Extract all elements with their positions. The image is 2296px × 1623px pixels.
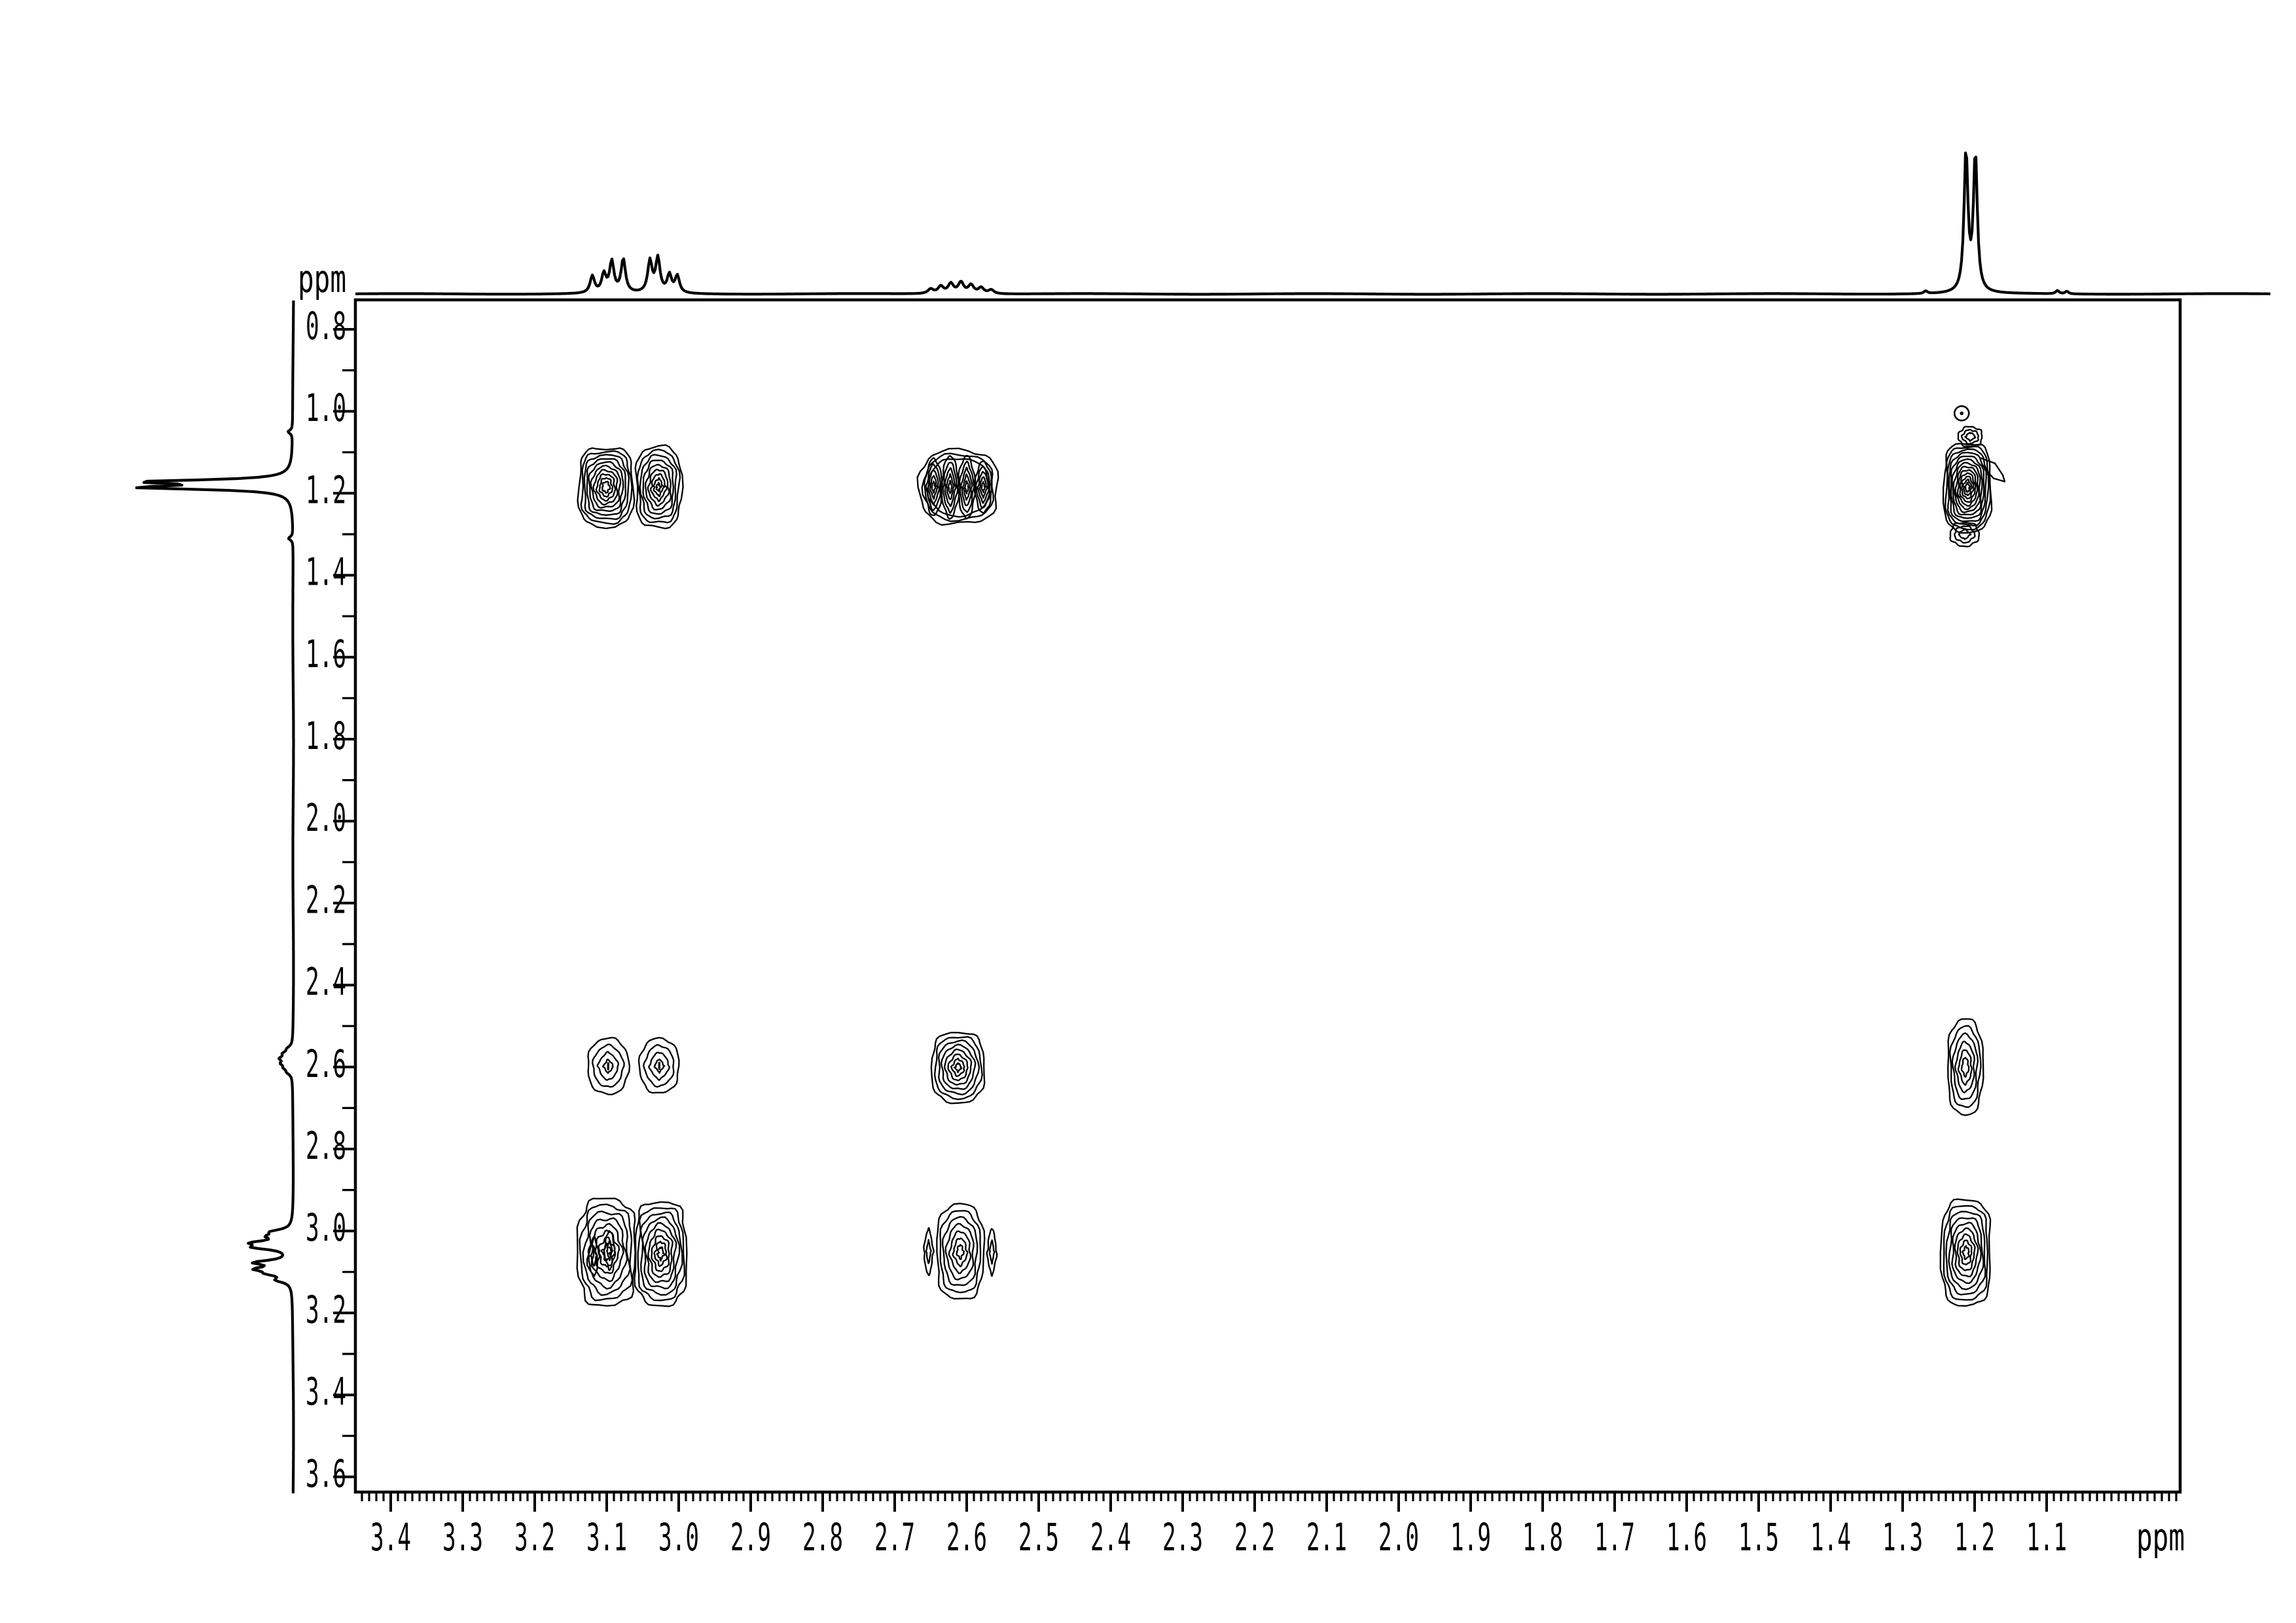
cross-peak-lobe-contour: [930, 476, 938, 500]
y-axis-tick-label: 1.8: [306, 714, 346, 758]
y-axis-tick-label: 3.6: [306, 1451, 346, 1496]
cross-peak-contour: [956, 1245, 964, 1259]
cross-peak-contour: [580, 1205, 632, 1301]
x-axis-tick-label: 1.1: [2026, 1515, 2067, 1559]
x-axis-tick-label: 3.2: [514, 1515, 555, 1559]
cross-peak-contour: [1958, 1050, 1972, 1085]
y-axis-tick-label: 1.4: [306, 550, 346, 594]
y-axis-tick-label: 1.0: [306, 386, 346, 430]
x-axis-tick-label: 3.1: [586, 1515, 627, 1559]
x-axis-tick-label: 2.9: [730, 1515, 771, 1559]
diagonal-satellite-contour: [1965, 433, 1976, 441]
cross-peak-wing-contour: [924, 1228, 933, 1276]
y-axis-tick-label: 1.2: [306, 467, 346, 512]
cross-peak-contour: [953, 1238, 968, 1266]
x-axis-tick-label: 2.8: [802, 1515, 843, 1559]
cross-peak-contour: [1962, 1057, 1969, 1077]
x-axis-tick-label: 1.6: [1666, 1515, 1707, 1559]
cosy-spectrum-canvas: 3.43.33.23.13.02.92.82.72.62.52.42.32.22…: [0, 0, 2296, 1623]
cross-peak-contour: [951, 1059, 964, 1076]
x-axis-tick-label: 3.4: [370, 1515, 411, 1559]
x-axis-tick-label: 2.6: [946, 1515, 987, 1559]
cross-peak-contour: [656, 483, 662, 491]
x-axis-unit-label: ppm: [2136, 1515, 2185, 1559]
cross-peak-lobe-contour: [982, 482, 986, 492]
y-axis-tick-label: 3.0: [306, 1205, 346, 1250]
cross-peak-contour: [1962, 1246, 1969, 1260]
y-axis-tick-label: 3.4: [306, 1370, 346, 1414]
x-axis-tick-label: 1.5: [1738, 1515, 1779, 1559]
x-axis-tick-label: 2.4: [1090, 1515, 1131, 1559]
diagonal-peak-contour: [1964, 483, 1970, 492]
x-axis-tick-label: 2.2: [1234, 1515, 1275, 1559]
artifact-marker-dot: [1960, 412, 1964, 416]
cross-peak-lobe-contour: [965, 481, 969, 494]
y-axis-tick-label: 3.2: [306, 1287, 346, 1332]
y-axis-tick-label: 2.2: [306, 877, 346, 922]
x-axis-tick-label: 1.7: [1594, 1515, 1635, 1559]
cross-peak-contour: [954, 1063, 961, 1072]
x-axis-tick-label: 2.3: [1162, 1515, 1203, 1559]
cross-peak-contour: [641, 1213, 683, 1295]
x-axis-tick-label: 2.0: [1378, 1515, 1419, 1559]
x-axis-tick-label: 1.9: [1450, 1515, 1491, 1559]
cross-peak-wing-contour: [990, 1240, 995, 1264]
y-axis-unit-label: ppm: [298, 257, 346, 301]
y-axis-tick-label: 2.0: [306, 795, 346, 840]
x-axis-tick-label: 2.7: [874, 1515, 915, 1559]
y-axis-tick-label: 2.4: [306, 960, 346, 1004]
x-axis-tick-label: 1.8: [1522, 1515, 1563, 1559]
cross-peak-contour: [657, 1247, 665, 1261]
x-axis-tick-label: 3.3: [442, 1515, 483, 1559]
x-axis-tick-label: 2.1: [1306, 1515, 1347, 1559]
y-axis-tick-label: 2.8: [306, 1123, 346, 1168]
cross-peak-lobe-contour: [948, 481, 952, 494]
x-axis-tick-label: 1.3: [1882, 1515, 1923, 1559]
y-axis-tick-label: 1.6: [306, 632, 346, 676]
cross-peak-lobe-contour: [932, 481, 936, 493]
x-axis-tick-label: 1.2: [1954, 1515, 1995, 1559]
left-1d-projection-trace: [137, 301, 294, 1493]
x-axis-tick-label: 2.5: [1018, 1515, 1059, 1559]
cross-peak-wing-contour: [987, 1229, 997, 1276]
cross-peak-contour: [602, 482, 610, 493]
diagonal-satellite-contour: [1959, 529, 1971, 539]
y-axis-tick-label: 0.8: [306, 304, 346, 348]
nmr-2d-spectrum-page: 3.43.33.23.13.02.92.82.72.62.52.42.32.22…: [0, 0, 2296, 1623]
y-axis-tick-label: 2.6: [306, 1042, 346, 1086]
cross-peak-contour: [654, 478, 664, 496]
cross-peak-wing-contour: [926, 1240, 931, 1264]
x-axis-tick-label: 1.4: [1810, 1515, 1851, 1559]
top-1d-projection-trace: [355, 153, 2270, 295]
x-axis-tick-label: 3.0: [658, 1515, 699, 1559]
